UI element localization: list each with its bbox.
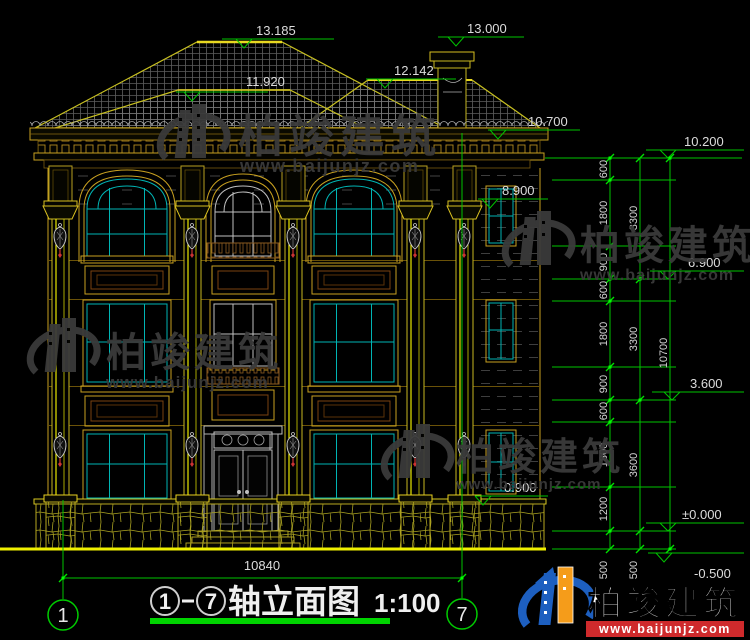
watermark-url: www.baijunjz.com [105,373,269,392]
balcony-railing-upper [207,243,279,258]
cad-viewport: 13.185 13.000 12.142 11.920 10.700 8.900… [0,0,750,640]
dim-total-width: 10840 [244,558,280,573]
title-axis-start: 1 [159,589,171,614]
dim-inner-5: 900 [598,375,610,393]
dim-total-height: 10700 [658,338,670,369]
door-handle-left [237,490,241,494]
elevation-text-chimney: 13.000 [467,21,507,36]
brand-logo-url: www.baijunjz.com [598,622,731,636]
dim-mid-3: 500 [628,561,640,579]
watermark-url: www.baijunjz.com [455,476,601,493]
elevation-text-cornice: 8.900 [502,183,535,198]
elevation-drawing-canvas: 13.185 13.000 12.142 11.920 10.700 8.900… [0,0,750,640]
title-scale: 1:100 [374,588,441,618]
elevation-text-floor2: 3.600 [690,376,723,391]
dim-mid-2: 3600 [628,453,640,477]
title-underline [150,618,390,624]
watermark-brand: 柏竣建筑 [456,437,624,479]
elevation-text-ridge3: 11.920 [246,74,285,89]
axis-bubble-7: 7 [456,604,467,626]
watermark-url: www.baijunjz.com [579,267,734,284]
dim-mid-1: 3300 [628,327,640,351]
watermark-url: www.baijunjz.com [239,156,419,176]
elevation-text-zero: ±0.000 [682,507,722,522]
watermark-brand: 柏竣建筑 [106,331,282,375]
elevation-text-ridge: 13.185 [256,23,296,38]
elevation-text-parapet: 10.200 [684,134,724,149]
dim-inner-8: 1200 [598,497,610,521]
elevation-text-grade: -0.500 [694,566,731,581]
elevation-text-eave: 10.700 [528,114,568,129]
elevation-text-ridge2: 12.142 [394,63,434,78]
brand-logo-name: 柏竣建筑 [588,584,742,623]
dim-inner-9: 500 [598,561,610,579]
door-handle-right [245,490,249,494]
dim-inner-1: 1800 [598,201,610,225]
axis-bubble-1: 1 [57,605,68,627]
title-name: 轴立面图 [228,583,360,620]
dim-inner-4: 1800 [598,322,610,346]
title-axis-end: 7 [205,589,217,614]
watermark-brand: 柏竣建筑 [580,224,750,268]
watermark-brand: 柏竣建筑 [238,111,442,162]
dim-inner-6: 600 [598,402,610,420]
dim-inner-0: 600 [598,160,610,178]
